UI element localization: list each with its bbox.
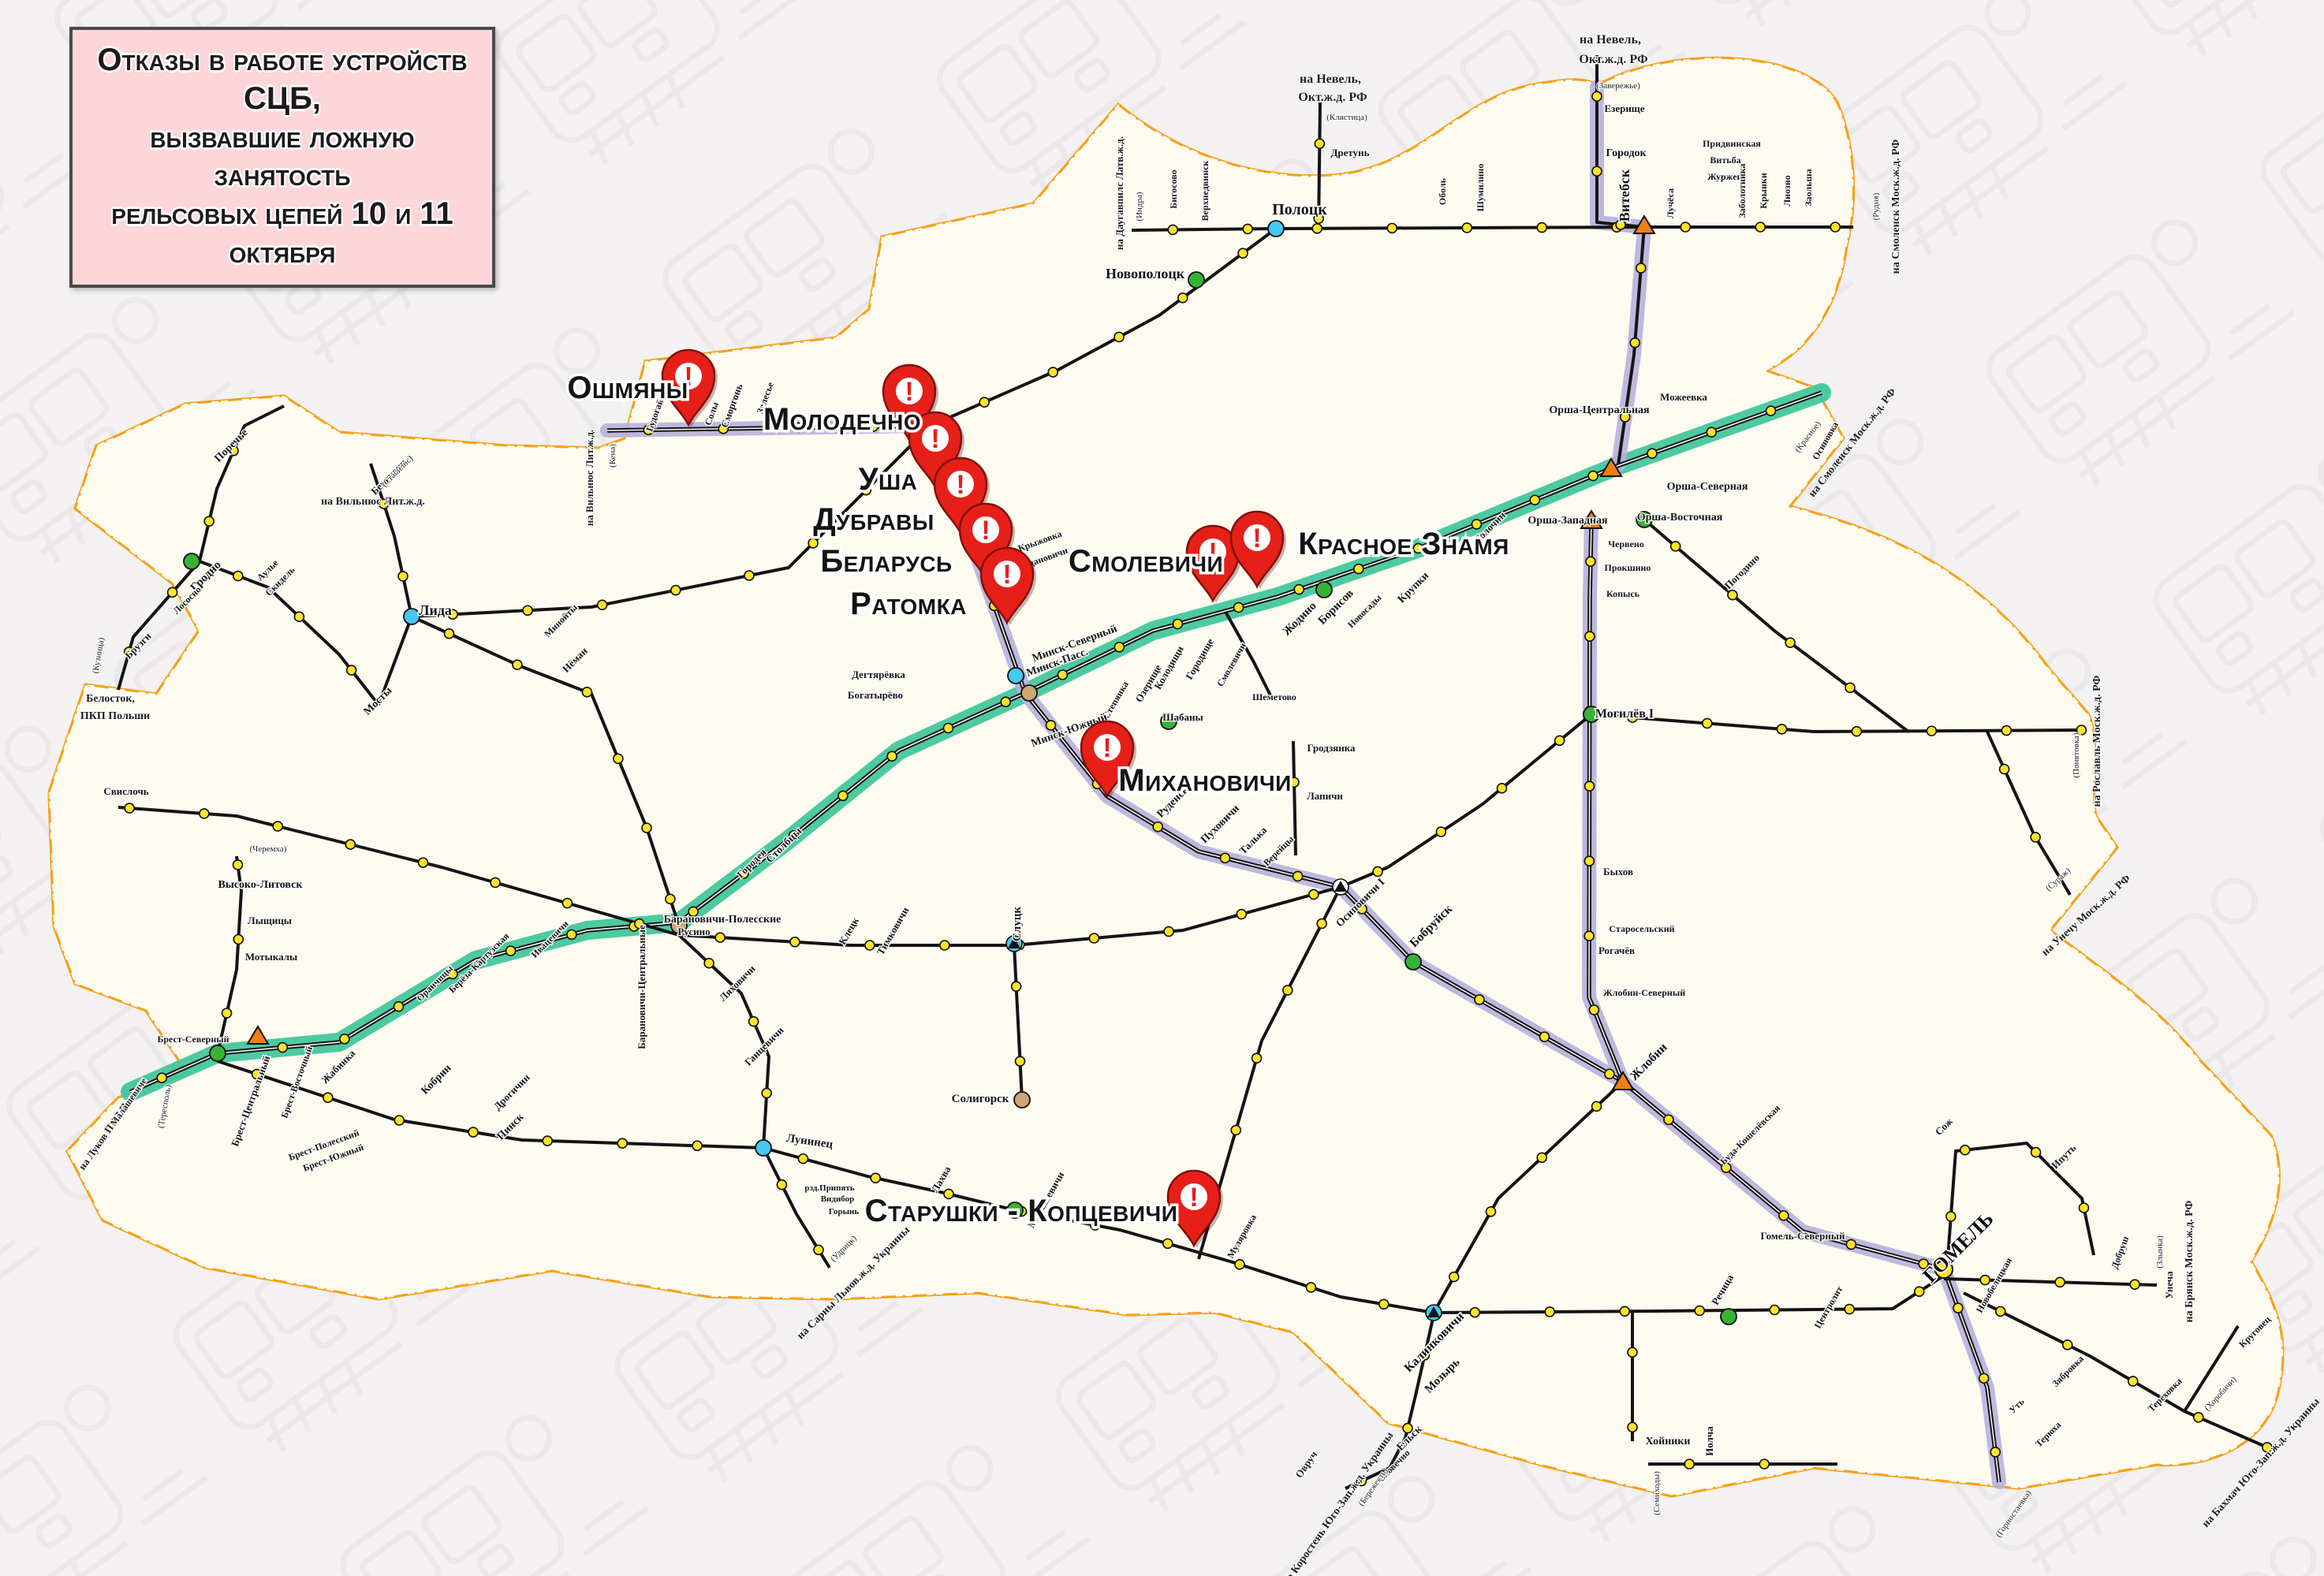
station-dot (1163, 1239, 1173, 1248)
station-dot (2063, 1340, 2072, 1350)
station-dot (642, 823, 651, 833)
title-line-3: рельсовых цепей 10 и 11 октября (80, 195, 484, 272)
station-dot (749, 1017, 759, 1026)
station-dot (1990, 1447, 2000, 1457)
station-dot (273, 822, 282, 831)
station-dot (1953, 1303, 1963, 1313)
station-dot (1592, 91, 1602, 101)
station-dot (1309, 889, 1319, 899)
station-dot (1354, 564, 1363, 574)
station-dot (1306, 1283, 1315, 1292)
station-dot (1312, 224, 1322, 233)
station-dot (394, 1116, 404, 1125)
station-dot (887, 751, 897, 761)
station-label: Орша-Западная (1528, 515, 1608, 527)
cyan-station-node (755, 1140, 771, 1156)
station-dot (1979, 1373, 1989, 1383)
station-label: Старосельский (1609, 923, 1674, 934)
title-line-1: Отказы в работе устройств СЦБ, (80, 41, 484, 118)
station-dot (294, 612, 304, 621)
failure-station-label: Старушки - Копцевичи (865, 1194, 1178, 1228)
station-dot (1695, 1306, 1704, 1315)
station-dot (2055, 1277, 2065, 1287)
station-label: Заболотника (1736, 163, 1748, 218)
station-dot (1153, 822, 1162, 832)
station-dot (2080, 1203, 2089, 1213)
station-dot (940, 941, 949, 950)
station-label: Шумилино (1475, 164, 1486, 212)
edge-label: на Даугавпилс Латв.ж.д. (1114, 136, 1125, 250)
station-dot (1592, 1101, 1602, 1111)
station-dot (1470, 1308, 1479, 1317)
station-dot (1584, 931, 1594, 941)
failure-station-label: Михановичи (1118, 763, 1292, 798)
station-dot (1960, 1146, 1970, 1155)
station-dot (340, 1034, 349, 1044)
station-dot (1539, 1032, 1549, 1041)
green-station-node (1721, 1309, 1736, 1325)
failure-station-label: Беларусь (820, 544, 952, 579)
station-dot (1475, 995, 1484, 1004)
green-station-node (1188, 272, 1204, 288)
station-dot (692, 1141, 702, 1150)
station-dot (1231, 1125, 1240, 1134)
railway-line (1276, 227, 1644, 229)
station-label: Езерище (1604, 102, 1644, 114)
station-dot (323, 1093, 333, 1102)
station-dot (871, 1173, 880, 1183)
title-box: Отказы в работе устройств СЦБ, вызвавшие… (69, 27, 495, 288)
station-dot (1707, 427, 1716, 437)
station-dot (1946, 1212, 1956, 1221)
station-dot (543, 1136, 552, 1146)
station-dot (1830, 222, 1840, 232)
station-dot (1664, 1115, 1673, 1124)
station-dot (1545, 1307, 1554, 1317)
station-dot (598, 600, 607, 609)
station-dot (1293, 871, 1303, 881)
station-dot (1671, 542, 1681, 551)
edge-label: (Понятовка) (2072, 732, 2081, 777)
station-dot (2001, 726, 2011, 736)
station-dot (1449, 1272, 1459, 1282)
station-label: Заольша (1803, 169, 1814, 206)
station-dot (1592, 166, 1602, 176)
cyan-station-node (404, 609, 420, 624)
station-dot (1620, 1306, 1629, 1316)
station-label: Богатырёво (848, 689, 903, 701)
station-label: Русино (677, 926, 710, 937)
station-dot (1759, 1459, 1769, 1469)
station-dot (1647, 449, 1657, 458)
station-dot (1636, 263, 1646, 273)
station-dot (777, 1180, 786, 1190)
edge-label: на Брянск Моск.ж.д. РФ (2184, 1201, 2195, 1323)
station-label: Барановичи-Полесские (664, 914, 782, 926)
station-label: Можеевка (1660, 391, 1707, 403)
station-label: Дретунь (1330, 147, 1369, 158)
station-dot (1012, 982, 1021, 991)
station-label: Придвинская (1703, 138, 1761, 149)
station-label: Лыщицы (248, 915, 292, 926)
station-dot (1315, 139, 1324, 148)
station-label: Гродзянка (1307, 742, 1356, 754)
station-dot (979, 397, 989, 407)
station-dot (398, 572, 408, 581)
station-label: Свислочь (103, 785, 148, 797)
station-dot (617, 1138, 627, 1148)
station-dot (506, 946, 516, 956)
station-dot (1537, 1153, 1546, 1162)
station-dot (1237, 910, 1246, 919)
station-dot (1046, 721, 1055, 730)
station-dot (1178, 293, 1188, 303)
station-label: Хойники (1645, 1436, 1690, 1447)
station-dot (1238, 248, 1248, 258)
station-dot (1089, 933, 1099, 943)
station-label: Видибор (821, 1194, 855, 1204)
station-dot (865, 941, 875, 950)
station-dot (1173, 619, 1182, 628)
edge-label: (Злынка) (2155, 1235, 2165, 1269)
station-dot (2000, 765, 2009, 774)
station-dot (1588, 471, 1598, 481)
station-dot (1387, 223, 1397, 233)
station-label: Шеметово (1252, 691, 1296, 702)
station-dot (2128, 1377, 2138, 1386)
edge-label: на Невель, (1300, 73, 1361, 86)
station-dot (744, 571, 754, 580)
station-dot (614, 754, 623, 763)
station-dot (1927, 726, 1936, 736)
station-label: Шабаны (1162, 711, 1203, 723)
station-dot (562, 899, 572, 908)
station-label: Витебск (1617, 169, 1632, 222)
station-dot (1537, 223, 1546, 233)
station-dot (790, 937, 800, 947)
tan-station-node (1014, 1092, 1030, 1108)
pin-exclamation: ! (1102, 733, 1111, 763)
pin-exclamation: ! (1252, 523, 1261, 553)
station-label: Жлобин-Северный (1603, 987, 1685, 998)
green-station-node (184, 553, 200, 569)
station-dot (347, 665, 356, 675)
pin-exclamation: ! (1002, 560, 1011, 590)
station-dot (1584, 856, 1594, 866)
edge-label: (Клястица) (1326, 113, 1367, 122)
station-dot (1168, 225, 1177, 234)
station-dot (1586, 557, 1595, 566)
station-dot (1778, 725, 1787, 734)
station-dot (1462, 223, 1472, 233)
station-label: Горынь (829, 1207, 860, 1216)
green-station-node (1316, 582, 1332, 598)
station-dot (1497, 784, 1506, 793)
failure-station-label: Дубравы (813, 502, 934, 537)
green-station-node (210, 1045, 226, 1061)
station-dot (2194, 1413, 2203, 1422)
station-dot (394, 1002, 403, 1012)
edge-label: Окт.ж.д. РФ (1579, 53, 1648, 66)
station-dot (1048, 367, 1058, 377)
station-dot (1766, 406, 1776, 415)
green-station-node (1405, 954, 1421, 970)
edge-label: на Смоленск Моск.ж.д. РФ (1890, 140, 1902, 274)
edge-label: на Вильнюс Лит.ж.д. (584, 430, 595, 526)
cyan-station-node (1008, 668, 1024, 684)
station-dot (1605, 1069, 1614, 1079)
station-dot (513, 660, 522, 669)
edge-label: Унеча (2163, 1271, 2175, 1299)
edge-label: Окт.ж.д. РФ (1298, 91, 1367, 104)
station-dot (1234, 602, 1244, 612)
station-dot (233, 860, 242, 870)
station-dot (1770, 1305, 1779, 1314)
station-label: Брест-Северный (157, 1034, 229, 1045)
station-dot (943, 724, 953, 733)
station-label: Быхов (1603, 866, 1633, 877)
cyan-station-node (1268, 221, 1284, 237)
station-dot (838, 791, 848, 800)
station-dot (1530, 495, 1539, 505)
station-label: Орша-Центральная (1549, 404, 1650, 416)
edge-label: (Семиходы) (1652, 1471, 1662, 1515)
failure-station-label: Ратомка (850, 587, 967, 621)
station-label: Лида (419, 602, 452, 618)
station-dot (666, 894, 675, 903)
station-dot (1630, 338, 1639, 348)
station-dot (2130, 1280, 2139, 1289)
station-dot (1001, 697, 1010, 706)
pin-exclamation: ! (931, 424, 939, 454)
station-label: Прокшино (1605, 562, 1651, 573)
station-label: Лапичи (1307, 790, 1343, 802)
edge-label: Белосток, (86, 693, 135, 705)
railway-failures-map-page: ПолоцкНовополоцкВитебскГородокЕзерищеЛуч… (0, 0, 2324, 1576)
station-dot (1779, 1211, 1789, 1220)
tan-station-node (1021, 685, 1037, 701)
station-dot (808, 538, 818, 548)
station-label: Червено (1608, 538, 1644, 550)
station-label: Лучёса (1665, 188, 1676, 218)
station-dot (1589, 1005, 1598, 1015)
pin-exclamation: ! (981, 516, 990, 546)
edge-label: на Вильнюс Лит.ж.д. (321, 496, 425, 508)
station-dot (125, 803, 134, 813)
station-dot (1785, 638, 1795, 647)
edge-label: ПКП Польши (80, 710, 150, 722)
station-dot (1114, 332, 1124, 341)
station-dot (1845, 683, 1855, 692)
edge-label: (Рудня) (1871, 192, 1881, 220)
station-dot (1283, 985, 1293, 995)
failure-station-label: Ошмяны (567, 371, 688, 405)
station-label: Копысь (1606, 588, 1640, 599)
pin-exclamation: ! (956, 470, 964, 500)
edge-label: на Невель, (1580, 33, 1641, 47)
station-dot (1252, 1053, 1262, 1063)
station-label: Барановичи-Центральные (636, 925, 647, 1049)
station-dot (1436, 827, 1446, 836)
station-label: Мотыкалы (245, 951, 297, 963)
station-dot (671, 586, 681, 595)
station-dot (1852, 727, 1861, 736)
station-label: Могилёв I (1595, 707, 1654, 721)
title-line-2: вызвавшие ложную занятость (80, 118, 484, 196)
station-dot (1235, 1260, 1244, 1269)
station-dot (1294, 585, 1304, 594)
station-dot (1845, 1305, 1854, 1314)
station-label: Рогачёв (1598, 944, 1635, 956)
station-dot (1379, 1299, 1389, 1309)
failure-station-label: Уша (859, 462, 918, 497)
station-dot (419, 858, 428, 867)
edge-label: (Кена) (608, 444, 617, 468)
failure-station-label: Молодечно (763, 402, 921, 437)
edge-label: (Индра) (1135, 192, 1144, 221)
station-dot (1555, 736, 1565, 745)
station-dot (1016, 1056, 1025, 1066)
station-label: Гомель-Северный (1761, 1230, 1845, 1242)
station-dot (2031, 833, 2040, 842)
station-dot (1703, 718, 1712, 728)
station-label: Слуцк (1011, 907, 1024, 941)
station-dot (1628, 1422, 1637, 1432)
station-label: Орша-Северная (1667, 481, 1748, 493)
edge-label: (Завережье) (1596, 81, 1640, 91)
station-dot (157, 1073, 166, 1082)
edge-label: на Рославль Моск.ж.д. РФ (2091, 676, 2103, 807)
station-dot (233, 572, 243, 581)
station-label: Новополоцк (1106, 266, 1185, 281)
station-label: рзд.Припять (804, 1183, 854, 1193)
station-label: Бигосово (1168, 170, 1179, 208)
station-dot (1996, 1306, 2005, 1316)
station-dot (523, 605, 532, 615)
station-dot (1755, 222, 1765, 232)
station-dot (445, 629, 454, 639)
station-dot (345, 840, 355, 849)
station-label: Солигорск (952, 1093, 1009, 1105)
station-dot (1373, 866, 1382, 876)
station-dot (278, 1043, 287, 1053)
edge-label: (Черемха) (250, 844, 287, 854)
station-dot (1915, 1287, 1924, 1296)
station-dot (1681, 222, 1690, 232)
station-label: Высоко-Литовск (218, 879, 304, 891)
station-dot (1114, 643, 1124, 652)
station-dot (1317, 918, 1326, 928)
station-dot (222, 1008, 232, 1018)
station-dot (1684, 1459, 1694, 1469)
station-dot (1220, 853, 1229, 863)
station-label: Орша-Восточная (1637, 512, 1723, 523)
railway-line (1132, 229, 1276, 230)
station-dot (233, 935, 243, 944)
station-label: Оболь (1437, 177, 1448, 205)
station-dot (582, 687, 591, 697)
station-dot (1846, 1239, 1856, 1249)
pin-exclamation: ! (1189, 1183, 1198, 1213)
station-dot (1628, 1347, 1637, 1357)
station-dot (1243, 224, 1252, 233)
station-dot (1058, 670, 1067, 680)
station-dot (715, 933, 725, 942)
failure-station-label: Смолевичи (1069, 544, 1223, 579)
station-dot (1486, 1207, 1495, 1216)
station-label: Иолча (1703, 1426, 1715, 1456)
station-label: Полоцк (1272, 201, 1327, 218)
station-dot (491, 877, 500, 887)
station-dot (762, 1089, 771, 1098)
station-dot (814, 1245, 823, 1254)
station-dot (2031, 1148, 2041, 1157)
station-dot (798, 1154, 808, 1164)
station-label: Лиозно (1781, 175, 1792, 207)
station-dot (1585, 632, 1595, 641)
station-dot (200, 809, 209, 818)
station-dot (704, 959, 714, 968)
station-label: Крынки (1758, 173, 1769, 209)
station-dot (1728, 591, 1737, 600)
station-dot (1164, 927, 1173, 937)
station-label: Дегтярёвка (852, 669, 905, 680)
station-label: Городок (1606, 147, 1647, 159)
failure-station-label: Красное Знамя (1298, 527, 1509, 561)
station-dot (204, 516, 214, 526)
station-dot (1585, 781, 1595, 791)
station-dot (168, 587, 177, 597)
station-dot (567, 930, 576, 939)
station-label: Верхнедвинск (1199, 161, 1210, 222)
station-dot (468, 1127, 478, 1137)
